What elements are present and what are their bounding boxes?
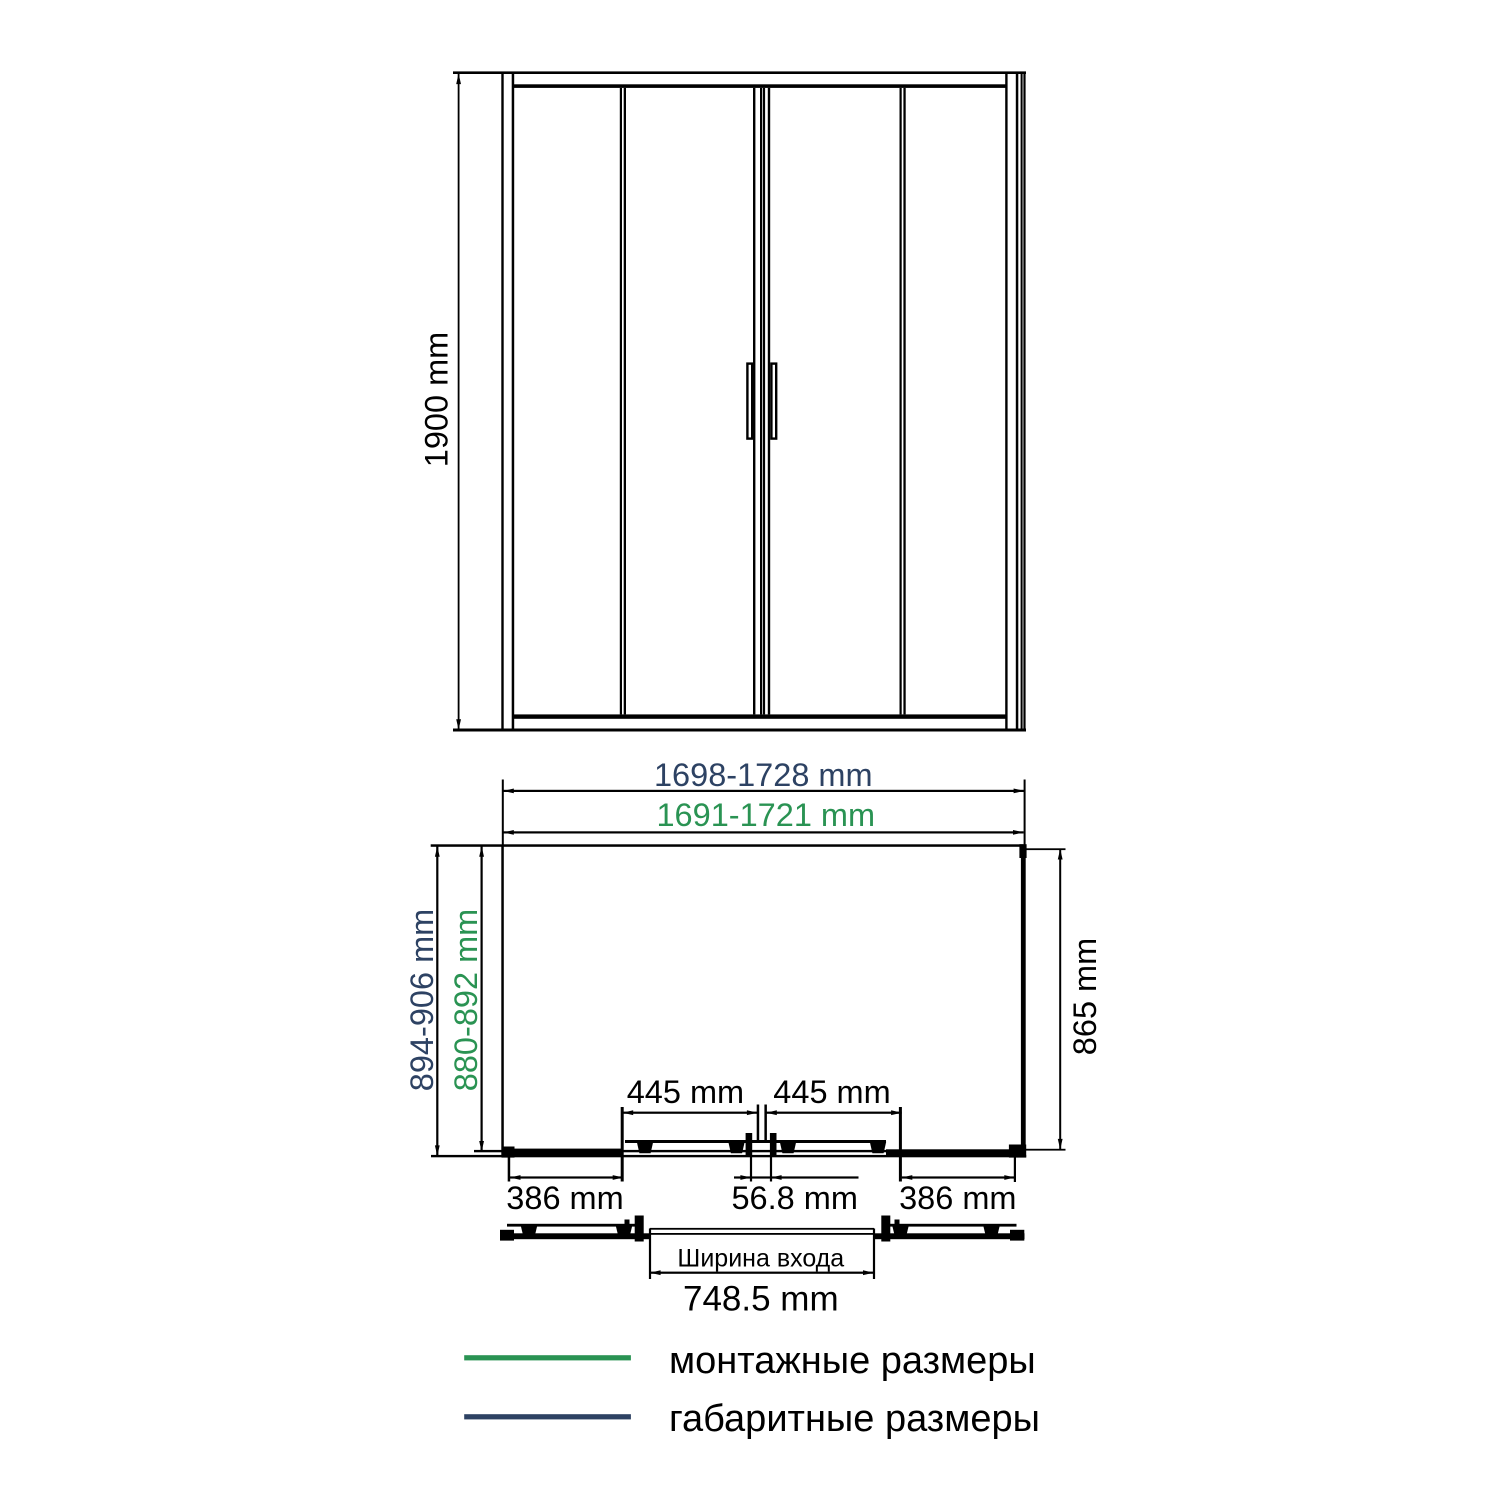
svg-text:1691-1721 mm: 1691-1721 mm bbox=[656, 797, 875, 833]
svg-text:Ширина входа: Ширина входа bbox=[677, 1245, 844, 1273]
svg-text:габаритные размеры: габаритные размеры bbox=[669, 1398, 1040, 1440]
svg-text:445 mm: 445 mm bbox=[627, 1074, 744, 1110]
svg-text:865 mm: 865 mm bbox=[1067, 938, 1103, 1055]
svg-text:56.8 mm: 56.8 mm bbox=[731, 1180, 857, 1216]
svg-text:386 mm: 386 mm bbox=[899, 1180, 1016, 1216]
svg-text:880-892 mm: 880-892 mm bbox=[448, 909, 484, 1091]
svg-text:748.5 mm: 748.5 mm bbox=[683, 1280, 839, 1319]
svg-text:1698-1728 mm: 1698-1728 mm bbox=[654, 757, 873, 793]
svg-text:894-906 mm: 894-906 mm bbox=[404, 909, 440, 1091]
svg-text:монтажные размеры: монтажные размеры bbox=[669, 1340, 1036, 1382]
svg-text:445 mm: 445 mm bbox=[773, 1074, 890, 1110]
svg-text:386 mm: 386 mm bbox=[506, 1180, 623, 1216]
svg-text:1900 mm: 1900 mm bbox=[419, 332, 455, 467]
